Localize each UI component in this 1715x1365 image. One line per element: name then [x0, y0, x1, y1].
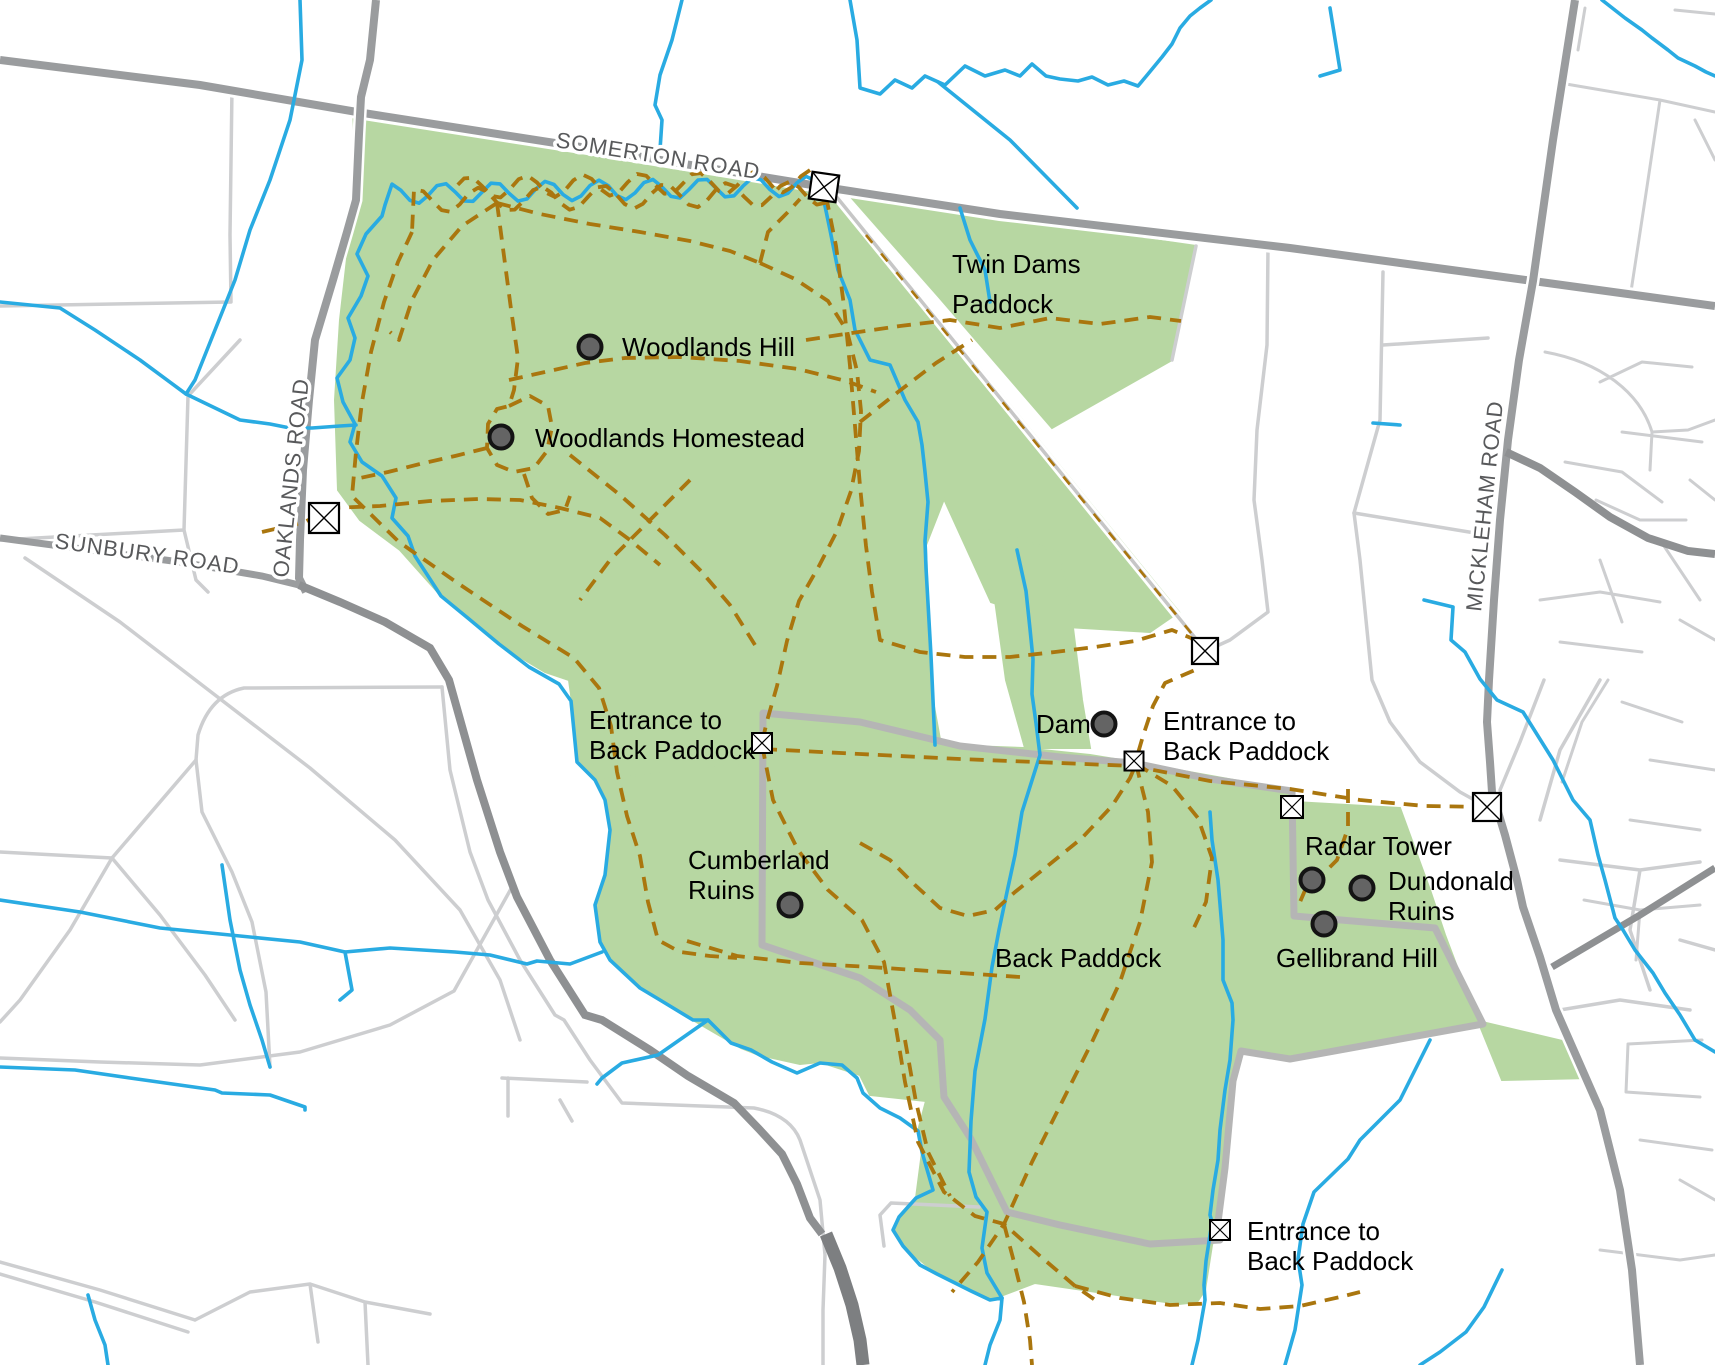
- svg-text:Radar Tower: Radar Tower: [1305, 831, 1452, 861]
- svg-text:Back Paddock: Back Paddock: [589, 735, 756, 765]
- svg-text:Entrance to: Entrance to: [1247, 1216, 1380, 1246]
- svg-text:Cumberland: Cumberland: [688, 845, 830, 875]
- svg-text:Dam: Dam: [1036, 709, 1091, 739]
- svg-text:Back Paddock: Back Paddock: [1247, 1246, 1414, 1276]
- svg-text:Woodlands Homestead: Woodlands Homestead: [535, 423, 805, 453]
- svg-text:Back Paddock: Back Paddock: [1163, 736, 1330, 766]
- svg-text:Entrance to: Entrance to: [1163, 706, 1296, 736]
- svg-text:Ruins: Ruins: [688, 875, 754, 905]
- svg-text:Woodlands Hill: Woodlands Hill: [622, 332, 795, 362]
- svg-text:Gellibrand Hill: Gellibrand Hill: [1276, 943, 1438, 973]
- svg-text:Back Paddock: Back Paddock: [995, 943, 1162, 973]
- svg-text:Ruins: Ruins: [1388, 896, 1454, 926]
- svg-text:Entrance to: Entrance to: [589, 705, 722, 735]
- svg-text:Twin Dams: Twin Dams: [952, 249, 1081, 279]
- svg-text:Dundonald: Dundonald: [1388, 866, 1514, 896]
- svg-text:Paddock: Paddock: [952, 289, 1054, 319]
